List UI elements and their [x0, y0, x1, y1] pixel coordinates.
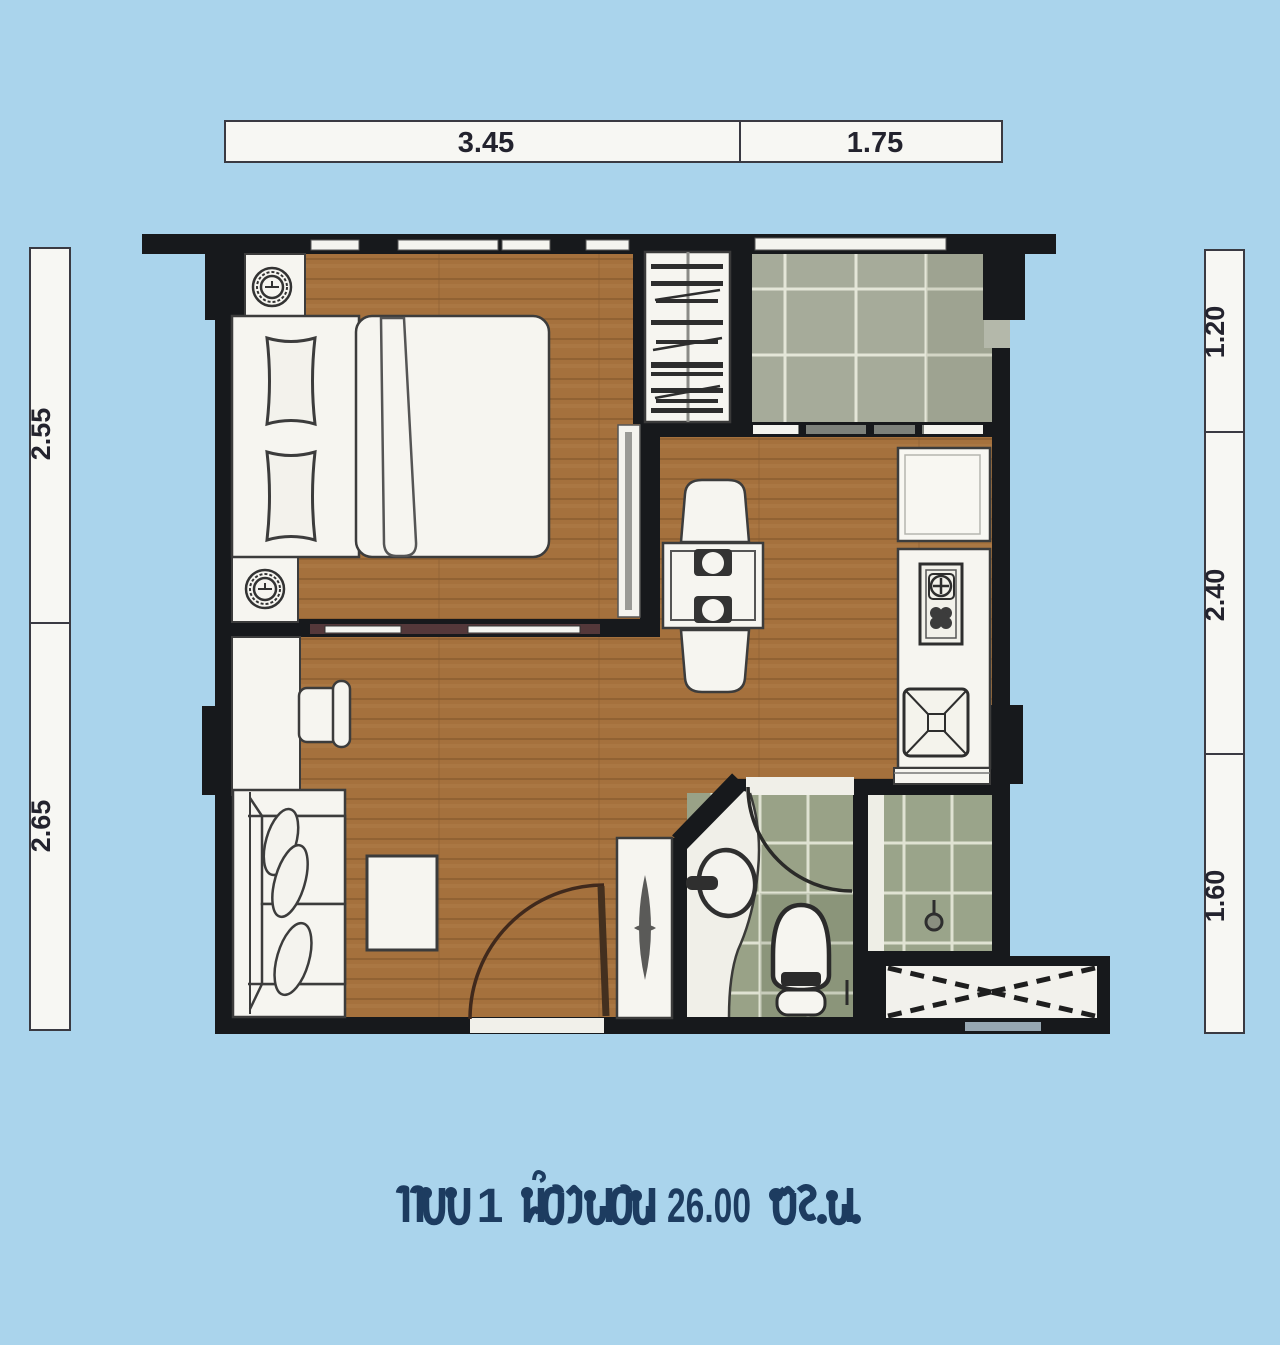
svg-text:1: 1 [477, 1180, 504, 1233]
svg-text:1.60: 1.60 [1200, 870, 1230, 923]
svg-text:2.65: 2.65 [26, 800, 56, 853]
svg-text:2.40: 2.40 [1200, 569, 1230, 622]
svg-text:2.55: 2.55 [26, 408, 56, 461]
svg-text:1.20: 1.20 [1200, 306, 1230, 359]
svg-text:26.00: 26.00 [667, 1180, 751, 1233]
svg-text:3.45: 3.45 [458, 127, 514, 159]
svg-text:1.75: 1.75 [847, 127, 903, 159]
